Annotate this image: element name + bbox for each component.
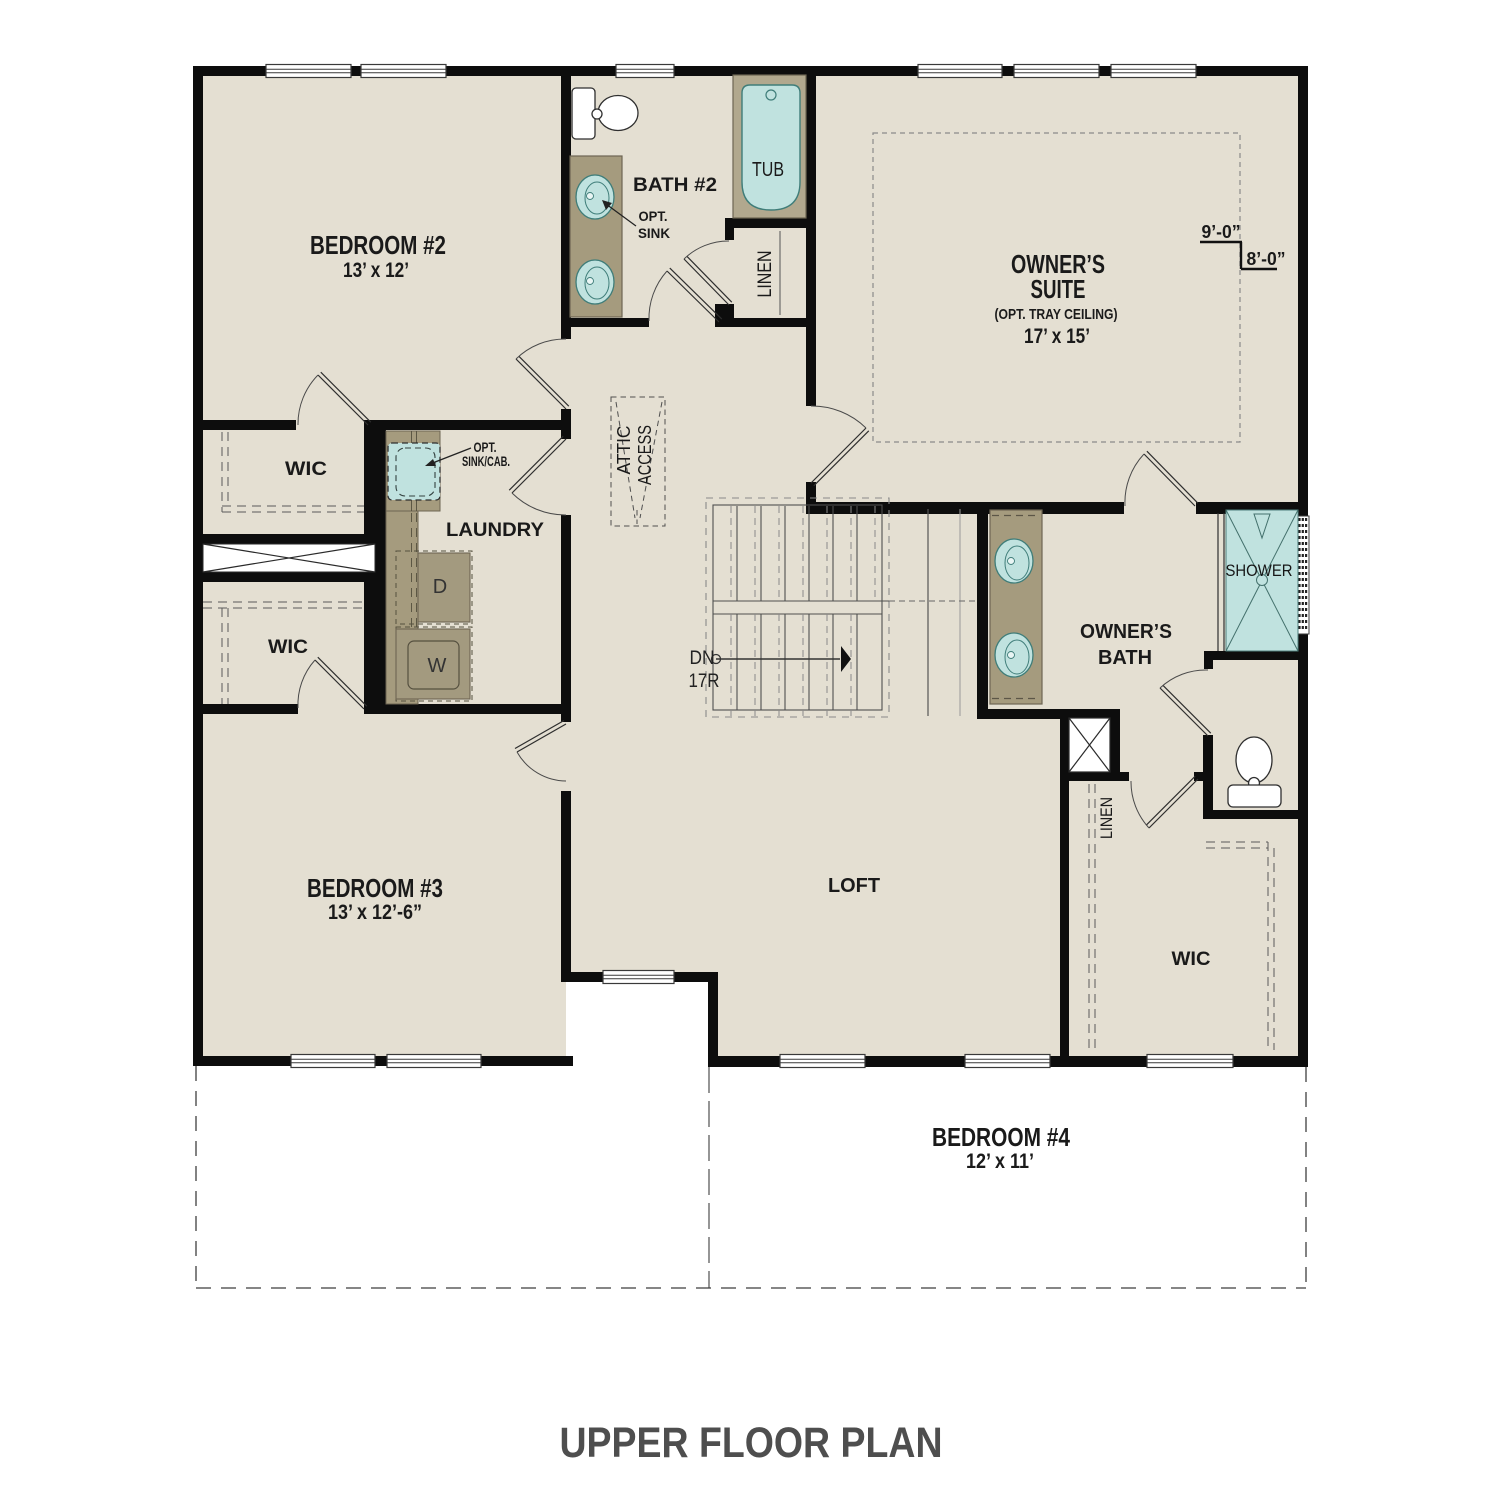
svg-text:BEDROOM #4: BEDROOM #4 — [932, 1124, 1071, 1152]
svg-text:W: W — [428, 655, 447, 677]
svg-text:LINEN: LINEN — [755, 251, 776, 298]
svg-text:WIC: WIC — [1172, 948, 1211, 970]
svg-text:OPT.: OPT. — [639, 208, 668, 224]
svg-text:DN: DN — [690, 648, 715, 669]
svg-text:UPPER FLOOR PLAN: UPPER FLOOR PLAN — [560, 1419, 943, 1467]
svg-text:TUB: TUB — [752, 159, 784, 181]
svg-text:SINK/CAB.: SINK/CAB. — [462, 454, 510, 469]
svg-text:BEDROOM #2: BEDROOM #2 — [310, 232, 446, 260]
svg-text:SUITE: SUITE — [1031, 274, 1086, 304]
svg-text:BEDROOM #3: BEDROOM #3 — [307, 875, 443, 903]
svg-text:BATH #2: BATH #2 — [633, 175, 717, 196]
svg-text:LOFT: LOFT — [828, 874, 880, 897]
svg-text:17’ x 15’: 17’ x 15’ — [1024, 325, 1090, 348]
svg-text:12’ x 11’: 12’ x 11’ — [966, 1150, 1034, 1173]
svg-text:17R: 17R — [689, 671, 720, 692]
svg-text:OWNER’S: OWNER’S — [1080, 620, 1172, 643]
svg-text:D: D — [433, 576, 447, 598]
svg-text:LINEN: LINEN — [1097, 797, 1116, 839]
svg-text:(OPT. TRAY CEILING): (OPT. TRAY CEILING) — [995, 306, 1118, 323]
svg-text:8’-0”: 8’-0” — [1247, 249, 1286, 269]
svg-text:SHOWER: SHOWER — [1226, 562, 1293, 580]
svg-text:OPT.: OPT. — [474, 440, 497, 455]
svg-text:13’ x 12’: 13’ x 12’ — [343, 259, 409, 282]
svg-text:9’-0”: 9’-0” — [1202, 222, 1241, 242]
svg-text:13’ x 12’-6”: 13’ x 12’-6” — [328, 901, 422, 924]
svg-text:ATTIC: ATTIC — [614, 426, 634, 475]
svg-text:ACCESS: ACCESS — [635, 425, 655, 485]
svg-text:WIC: WIC — [285, 458, 327, 480]
svg-text:WIC: WIC — [268, 636, 308, 658]
svg-text:SINK: SINK — [638, 225, 670, 241]
svg-text:LAUNDRY: LAUNDRY — [446, 519, 544, 541]
svg-text:BATH: BATH — [1098, 646, 1152, 669]
